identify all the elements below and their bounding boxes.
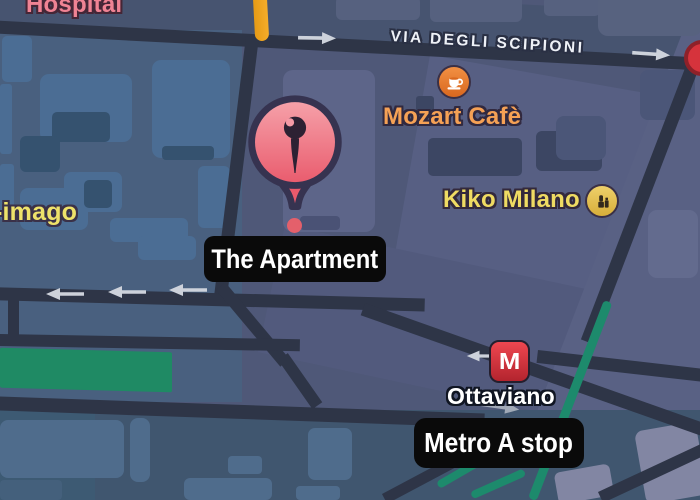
building	[228, 456, 262, 474]
metro-m-letter: M	[499, 350, 520, 373]
park	[0, 348, 172, 393]
imago-label: -imago	[0, 198, 77, 227]
building	[0, 84, 12, 154]
arrow-left-icon	[106, 285, 148, 304]
poi-label-kiko-milano[interactable]: Kiko Milano	[443, 186, 580, 214]
building	[184, 478, 272, 500]
apartment-callout: The Apartment	[204, 236, 386, 282]
building	[2, 36, 32, 82]
coffee-cup-icon[interactable]	[437, 65, 471, 99]
hospital-label: Hospital	[26, 0, 122, 19]
location-dot	[287, 218, 302, 233]
building	[20, 136, 60, 172]
building	[152, 60, 230, 158]
metro-stop-callout-text: Metro A stop	[425, 427, 574, 459]
building	[296, 486, 340, 500]
metro-m-icon[interactable]: M	[489, 340, 530, 383]
building	[556, 116, 606, 160]
building	[336, 0, 420, 20]
building	[52, 112, 110, 142]
building	[84, 180, 112, 208]
poi-label-mozart-cafe[interactable]: Mozart Cafè	[383, 103, 521, 131]
arrow-left-icon	[44, 287, 86, 306]
building	[428, 138, 522, 176]
building	[0, 420, 124, 478]
building	[308, 428, 352, 480]
location-pin-icon[interactable]	[242, 92, 348, 230]
building	[430, 0, 522, 22]
poi-label-ottaviano[interactable]: Ottaviano	[447, 383, 555, 410]
metro-stop-callout: Metro A stop	[414, 418, 584, 468]
apartment-callout-text: The Apartment	[212, 244, 379, 275]
building	[130, 418, 150, 482]
building	[138, 236, 196, 260]
road	[8, 296, 19, 340]
building	[598, 0, 700, 36]
highway-segment	[253, 0, 269, 41]
arrow-left-icon	[167, 283, 209, 302]
arrow-right-icon	[629, 46, 672, 68]
arrow-right-icon	[296, 31, 338, 51]
building	[544, 0, 600, 16]
map-canvas[interactable]: Hospital VIA DEGLI SCIPIONI -imago Mozar…	[0, 0, 700, 500]
building	[0, 480, 62, 500]
building	[162, 146, 214, 160]
building	[648, 210, 698, 278]
lipstick-icon[interactable]	[585, 184, 619, 218]
